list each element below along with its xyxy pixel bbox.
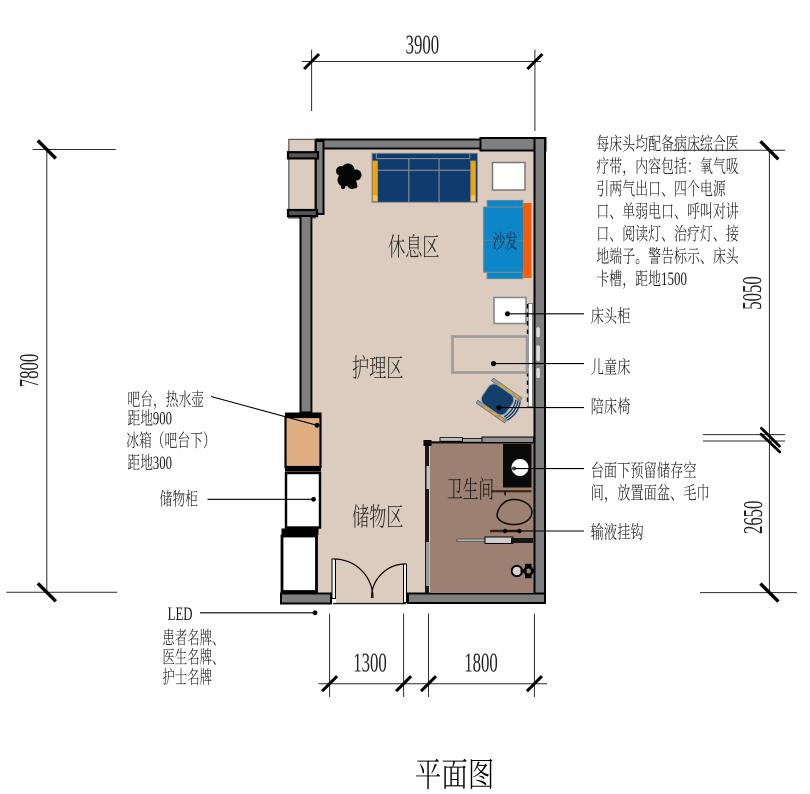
- svg-text:7800: 7800: [14, 354, 44, 387]
- svg-text:1500: 1500: [661, 270, 687, 290]
- svg-text:2650: 2650: [738, 501, 768, 534]
- svg-text:300: 300: [153, 454, 172, 474]
- svg-text:5050: 5050: [737, 276, 767, 309]
- svg-text:3900: 3900: [406, 29, 439, 59]
- svg-text:1300: 1300: [353, 647, 386, 677]
- svg-text:900: 900: [153, 410, 172, 430]
- svg-text:LED: LED: [168, 605, 193, 625]
- svg-text:1800: 1800: [464, 647, 497, 677]
